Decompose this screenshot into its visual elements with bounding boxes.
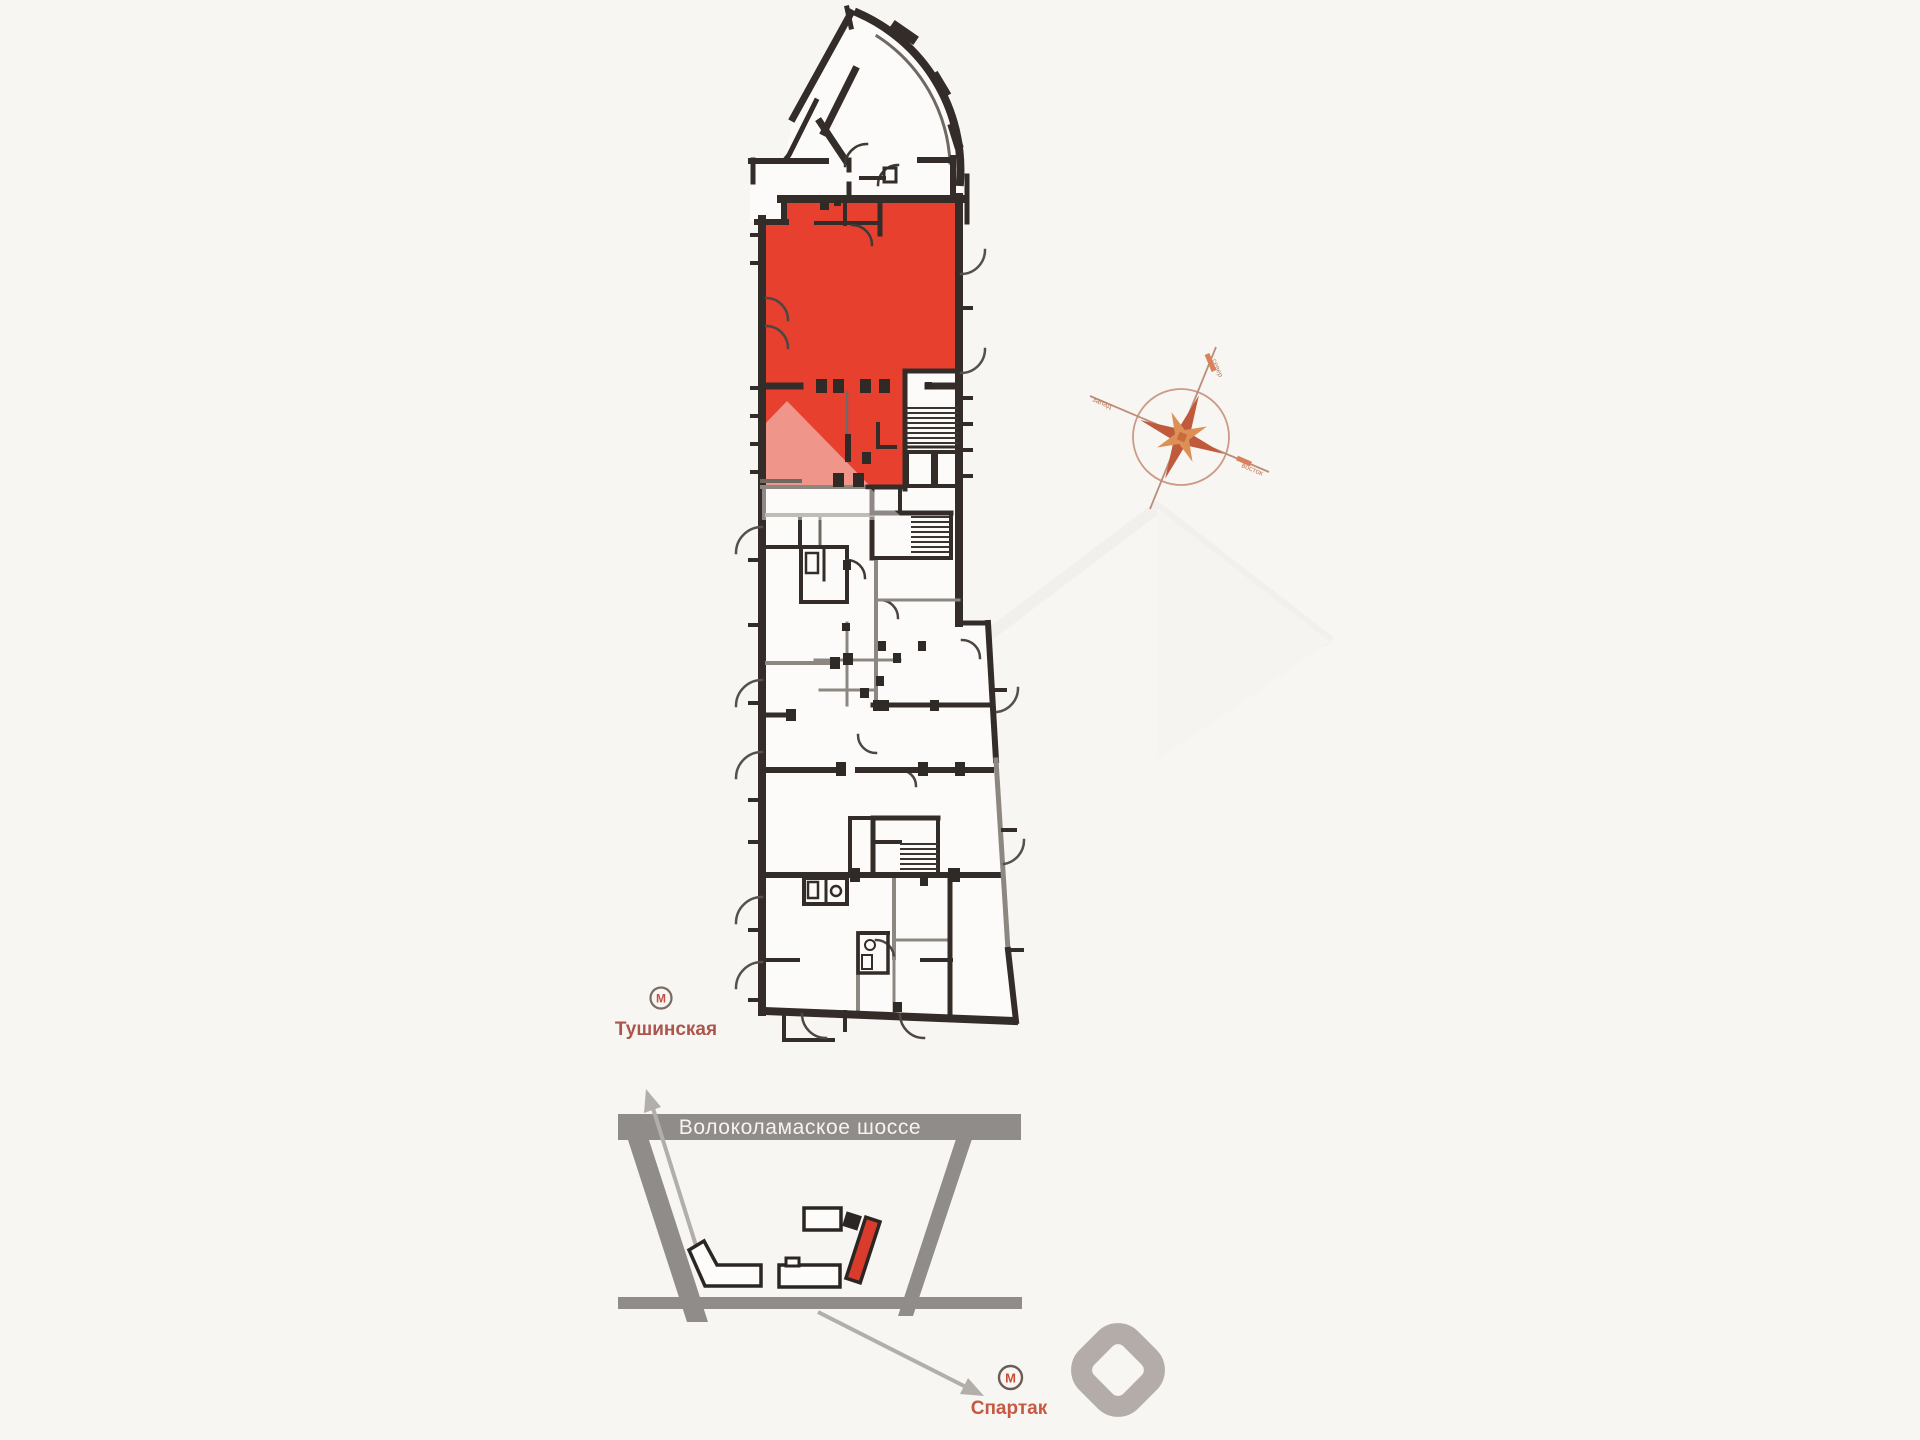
svg-text:Волоколамаское шоссе: Волоколамаское шоссе: [679, 1116, 921, 1139]
svg-text:Спартак: Спартак: [971, 1398, 1048, 1419]
svg-text:М: М: [656, 992, 666, 1006]
svg-text:Тушинская: Тушинская: [615, 1019, 717, 1040]
svg-text:М: М: [1005, 1371, 1016, 1386]
